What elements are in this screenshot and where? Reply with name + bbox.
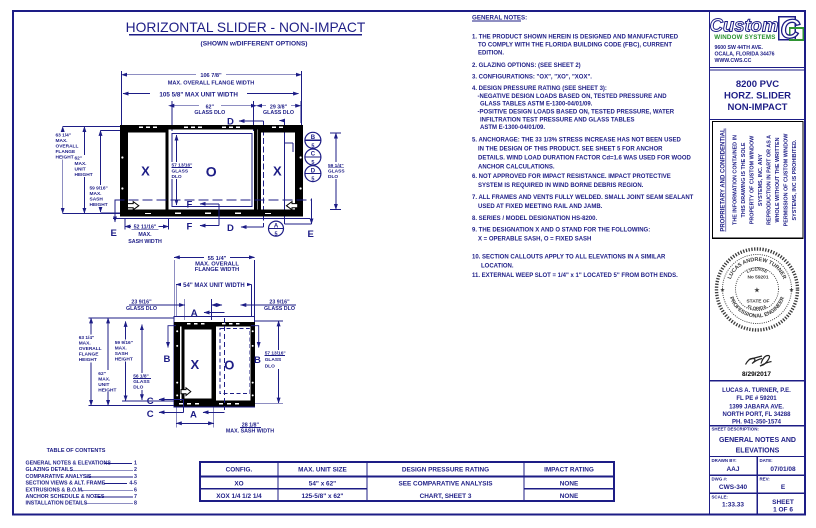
svg-text:MAX.: MAX. [75, 161, 87, 167]
svg-text:59 9/16": 59 9/16" [115, 340, 133, 346]
svg-text:10. SECTION CALLOUTS APPLY TO: 10. SECTION CALLOUTS APPLY TO ALL ELEVAT… [472, 255, 666, 261]
svg-text:DATE:: DATE: [760, 458, 774, 463]
svg-text:23 9/16": 23 9/16" [131, 300, 152, 306]
svg-text:SHEET: SHEET [772, 499, 794, 506]
svg-text:6: 6 [134, 487, 137, 493]
svg-text:X: X [273, 164, 282, 179]
svg-text:NON-IMPACT: NON-IMPACT [728, 102, 788, 113]
svg-text:EDITION.: EDITION. [478, 50, 504, 56]
svg-text:B: B [311, 135, 316, 141]
svg-text:PERMISSION OF CUSTOM WINDOW: PERMISSION OF CUSTOM WINDOW [784, 133, 790, 227]
svg-text:63 1/4": 63 1/4" [56, 132, 72, 138]
svg-text:MAX.: MAX. [138, 232, 152, 238]
svg-text:STATE OF: STATE OF [746, 299, 769, 305]
svg-text:USED AT FIXED MEETING RAIL AND: USED AT FIXED MEETING RAIL AND JAMB. [478, 204, 603, 210]
svg-text:ELEVATIONS: ELEVATIONS [736, 447, 780, 454]
svg-text:1. THE PRODUCT SHOWN HEREIN IS: 1. THE PRODUCT SHOWN HEREIN IS DESIGNED … [472, 35, 679, 41]
svg-text:COMPARATIVE ANALYSIS: COMPARATIVE ANALYSIS [26, 474, 92, 480]
svg-text:SECTION VIEWS & ALT. FRAME: SECTION VIEWS & ALT. FRAME [26, 481, 106, 487]
svg-text:★: ★ [720, 288, 725, 294]
svg-text:8/29/2017: 8/29/2017 [742, 371, 771, 378]
svg-text:GLASS DLO: GLASS DLO [194, 110, 225, 116]
svg-text:O: O [206, 164, 217, 180]
svg-text:OVERALL: OVERALL [79, 346, 102, 352]
svg-text:GLAZING DETAILS: GLAZING DETAILS [26, 467, 74, 473]
svg-text:X: X [141, 164, 150, 179]
svg-text:2. GLAZING OPTIONS: (SEE SHEET: 2. GLAZING OPTIONS: (SEE SHEET 2) [472, 63, 581, 69]
svg-text:SYSTEM IS REQUIRED IN WIND BOR: SYSTEM IS REQUIRED IN WIND BORNE DEBRIS … [478, 183, 644, 189]
svg-text:2: 2 [134, 467, 137, 473]
svg-text:XOX 1/4 1/2 1/4: XOX 1/4 1/2 1/4 [216, 493, 262, 500]
svg-text:106 7/8": 106 7/8" [200, 73, 222, 79]
svg-text:C: C [780, 14, 800, 44]
svg-text:LOCATION.: LOCATION. [481, 264, 514, 270]
svg-text:DWG #:: DWG #: [712, 476, 728, 481]
svg-text:GLASS TABLES ASTM E-1300-04/01: GLASS TABLES ASTM E-1300-04/01/09. [480, 102, 593, 108]
svg-text:THE INFORMATION CONTAINED IN: THE INFORMATION CONTAINED IN [733, 135, 739, 225]
svg-text:FLANGE: FLANGE [56, 149, 77, 155]
svg-text:GENERAL NOTES & ELEVATIONS: GENERAL NOTES & ELEVATIONS [26, 461, 112, 467]
svg-text:SEE COMPARATIVE ANALYSIS: SEE COMPARATIVE ANALYSIS [398, 481, 493, 488]
svg-text:O: O [224, 358, 234, 373]
svg-text:★: ★ [789, 288, 794, 294]
svg-text:MAX. SASH WIDTH: MAX. SASH WIDTH [226, 429, 274, 435]
svg-text:MAX.: MAX. [90, 191, 102, 197]
svg-text:A: A [274, 223, 279, 229]
svg-text:THIS DRAWING IS THE SOLE: THIS DRAWING IS THE SOLE [741, 142, 747, 217]
svg-text:5. ANCHORAGE: THE 33 1/3% STRE: 5. ANCHORAGE: THE 33 1/3% STRESS INCREAS… [472, 138, 681, 144]
svg-text:GENERAL NOTES AND: GENERAL NOTES AND [719, 437, 796, 444]
svg-text:7: 7 [134, 494, 137, 500]
svg-text:SYSTEMS, INC IS PROHIBITED.: SYSTEMS, INC IS PROHIBITED. [792, 139, 798, 220]
svg-text:E: E [781, 484, 786, 491]
svg-text:62": 62" [75, 156, 83, 162]
svg-text:SCALE:: SCALE: [712, 494, 729, 499]
svg-text:3: 3 [134, 474, 137, 480]
svg-text:HEIGHT: HEIGHT [115, 357, 133, 363]
svg-text:ANCHOR CALCULATIONS.: ANCHOR CALCULATIONS. [478, 165, 555, 171]
svg-text:FLANGE WIDTH: FLANGE WIDTH [195, 267, 239, 273]
svg-text:NONE: NONE [560, 493, 579, 500]
svg-text:UNIT: UNIT [98, 382, 109, 388]
svg-text:5: 5 [274, 232, 277, 238]
svg-text:EXTRUSIONS & B.O.M.: EXTRUSIONS & B.O.M. [26, 487, 85, 493]
svg-text:SHEET DESCRIPTION:: SHEET DESCRIPTION: [712, 427, 760, 432]
svg-text:A: A [190, 409, 197, 420]
svg-text:WWW.CWS.CC: WWW.CWS.CC [715, 58, 752, 64]
svg-text:A: A [191, 308, 198, 319]
svg-text:SASH: SASH [115, 351, 129, 357]
svg-text:MAX.: MAX. [56, 138, 68, 144]
svg-text:C: C [147, 409, 154, 420]
svg-text:FLANGE: FLANGE [79, 352, 100, 358]
svg-text:7. ALL FRAMES AND VENTS FULLY: 7. ALL FRAMES AND VENTS FULLY WELDED. SM… [472, 195, 694, 201]
svg-text:GLASS: GLASS [133, 379, 150, 385]
svg-text:PROPERTY OF CUSTOM WINDOW: PROPERTY OF CUSTOM WINDOW [750, 135, 756, 224]
svg-text:MAX.: MAX. [98, 376, 110, 382]
svg-text:X = OPERABLE SASH, O = FIXED S: X = OPERABLE SASH, O = FIXED SASH [478, 236, 591, 242]
svg-text:IMPACT RATING: IMPACT RATING [544, 466, 594, 473]
svg-text:23 9/16": 23 9/16" [269, 300, 290, 306]
svg-text:CONFIG.: CONFIG. [226, 466, 253, 473]
svg-text:F: F [187, 199, 193, 210]
svg-text:HEIGHT: HEIGHT [75, 172, 93, 178]
svg-text:IN THE DESIGN OF THIS PRODUCT.: IN THE DESIGN OF THIS PRODUCT. SEE SHEET… [478, 147, 663, 153]
svg-text:07/01/08: 07/01/08 [770, 466, 796, 473]
svg-text:8: 8 [134, 501, 137, 507]
svg-text:OCALA, FLORIDA 34476: OCALA, FLORIDA 34476 [715, 51, 775, 57]
svg-text:9. THE DESIGNATION X AND O STA: 9. THE DESIGNATION X AND O STAND FOR THE… [472, 227, 650, 233]
svg-text:1: 1 [134, 461, 137, 467]
svg-text:1 OF 6: 1 OF 6 [773, 506, 793, 513]
svg-text:-POSITIVE DESIGN LOADS BASED O: -POSITIVE DESIGN LOADS BASED ON, TESTED … [478, 110, 675, 116]
svg-text:B: B [254, 355, 261, 366]
svg-text:54" MAX UNIT WIDTH: 54" MAX UNIT WIDTH [183, 283, 245, 289]
svg-text:HORZ. SLIDER: HORZ. SLIDER [724, 90, 791, 101]
svg-text:DESIGN PRESSURE RATING: DESIGN PRESSURE RATING [402, 466, 489, 473]
svg-text:DETAILS. WIND LOAD DURATION FA: DETAILS. WIND LOAD DURATION FACTOR Cd=1.… [478, 156, 692, 162]
svg-text:GENERAL NOTES:: GENERAL NOTES: [472, 15, 527, 22]
svg-text:E: E [111, 228, 117, 239]
svg-text:DLO: DLO [172, 174, 182, 180]
svg-text:1399 JABARA AVE.: 1399 JABARA AVE. [729, 404, 784, 410]
svg-text:INSTALLATION DETAILS: INSTALLATION DETAILS [26, 501, 88, 507]
svg-text:No 59201: No 59201 [747, 275, 768, 281]
svg-text:★: ★ [754, 287, 760, 294]
svg-text:MAX. OVERALL FLANGE WIDTH: MAX. OVERALL FLANGE WIDTH [168, 80, 255, 86]
svg-text:D: D [311, 168, 316, 174]
svg-text:11. EXTERNAL WEEP SLOT = 1/4": 11. EXTERNAL WEEP SLOT = 1/4" x 1" LOCAT… [472, 273, 678, 279]
svg-text:OVERALL: OVERALL [56, 143, 79, 149]
svg-text:E: E [308, 229, 314, 240]
svg-text:HEIGHT: HEIGHT [56, 155, 74, 161]
svg-text:SYSTEMS, INC. ANY: SYSTEMS, INC. ANY [758, 153, 764, 206]
svg-text:HEIGHT: HEIGHT [98, 387, 116, 393]
svg-text:TO COMPLY WITH THE FLORIDA BUI: TO COMPLY WITH THE FLORIDA BUILDING CODE… [478, 43, 672, 49]
svg-text:GLASS: GLASS [265, 357, 282, 363]
svg-text:4-5: 4-5 [129, 481, 137, 487]
svg-text:105 5/8" MAX UNIT WIDTH: 105 5/8" MAX UNIT WIDTH [159, 92, 238, 99]
svg-text:WINDOW SYSTEMS: WINDOW SYSTEMS [714, 34, 775, 41]
svg-text:HORIZONTAL SLIDER - NON-IMPACT: HORIZONTAL SLIDER - NON-IMPACT [126, 20, 366, 35]
svg-text:XO: XO [234, 481, 243, 488]
svg-text:HEIGHT: HEIGHT [90, 202, 108, 208]
svg-text:ASTM E-1300-04/01/09.: ASTM E-1300-04/01/09. [480, 125, 545, 131]
svg-text:59 9/16": 59 9/16" [90, 186, 108, 192]
svg-text:GLASS DLO: GLASS DLO [264, 306, 295, 312]
svg-text:MAX.: MAX. [79, 341, 91, 347]
svg-text:NORTH PORT, FL 34288: NORTH PORT, FL 34288 [723, 412, 792, 418]
svg-text:MAX.: MAX. [115, 346, 127, 352]
svg-text:REV:: REV: [760, 476, 771, 481]
svg-text:3. CONFIGURATIONS: "OX", "XO",: 3. CONFIGURATIONS: "OX", "XO", "XOX". [472, 75, 592, 81]
svg-text:HEIGHT: HEIGHT [79, 357, 97, 363]
svg-text:PH. 941-350-1574: PH. 941-350-1574 [732, 420, 782, 426]
svg-text:F: F [187, 221, 193, 232]
svg-text:C: C [147, 396, 154, 407]
svg-text:UNIT: UNIT [75, 167, 86, 173]
svg-text:1:33.33: 1:33.33 [722, 502, 744, 509]
svg-text:CHART, SHEET 3: CHART, SHEET 3 [420, 493, 472, 500]
svg-text:8200 PVC: 8200 PVC [736, 79, 779, 90]
svg-text:GLASS: GLASS [172, 168, 189, 174]
svg-text:SASH WIDTH: SASH WIDTH [128, 239, 162, 245]
svg-text:DLO: DLO [265, 364, 275, 370]
svg-text:GLASS: GLASS [328, 168, 345, 174]
svg-text:GLASS DLO: GLASS DLO [263, 110, 294, 116]
svg-text:54" x 62": 54" x 62" [309, 481, 336, 488]
svg-text:SASH: SASH [90, 197, 104, 203]
svg-text:Custom: Custom [710, 15, 779, 36]
svg-text:AAJ: AAJ [726, 466, 739, 473]
svg-text:62": 62" [98, 371, 106, 377]
svg-text:D: D [227, 223, 234, 234]
svg-text:MAX. UNIT SIZE: MAX. UNIT SIZE [298, 466, 347, 473]
svg-text:125-5/8" x 62": 125-5/8" x 62" [302, 493, 344, 500]
svg-text:REPRODUCTION IN PART OR AS A: REPRODUCTION IN PART OR AS A [767, 135, 773, 225]
svg-text:X: X [190, 357, 199, 372]
svg-text:-NEGATIVE DESIGN LOADS BASED O: -NEGATIVE DESIGN LOADS BASED ON, TESTED … [478, 94, 668, 100]
svg-text:4. DESIGN PRESSURE RATING (SEE: 4. DESIGN PRESSURE RATING (SEE SHEET 3): [472, 86, 607, 92]
svg-text:DLO: DLO [328, 174, 338, 180]
svg-text:B: B [164, 354, 171, 365]
svg-text:8. SERIES / MODEL DESIGNATION: 8. SERIES / MODEL DESIGNATION HS-8200. [472, 216, 597, 222]
svg-text:CWS-340: CWS-340 [719, 484, 748, 491]
svg-text:TABLE OF CONTENTS: TABLE OF CONTENTS [47, 448, 106, 454]
svg-text:WHOLE WITHOUT THE WRITTEN: WHOLE WITHOUT THE WRITTEN [775, 137, 781, 222]
svg-text:GLASS DLO: GLASS DLO [126, 306, 157, 312]
svg-text:6. NOT APPROVED FOR IMPACT RES: 6. NOT APPROVED FOR IMPACT RESISTANCE. I… [472, 174, 671, 180]
svg-text:DLO: DLO [133, 385, 143, 391]
svg-text:NONE: NONE [560, 481, 579, 488]
svg-text:63 1/4": 63 1/4" [79, 335, 95, 341]
svg-text:5: 5 [311, 177, 314, 183]
svg-text:DRAWN BY:: DRAWN BY: [712, 458, 738, 463]
svg-text:FL PE # 59201: FL PE # 59201 [736, 396, 777, 402]
svg-text:PROPRIETARY AND CONFIDENTIAL: PROPRIETARY AND CONFIDENTIAL [721, 128, 727, 232]
svg-text:C: C [311, 152, 316, 158]
svg-text:ANCHOR SCHEDULE & NOTES: ANCHOR SCHEDULE & NOTES [26, 494, 105, 500]
svg-text:INFILTRATION TEST PRESSURE AND: INFILTRATION TEST PRESSURE AND GLASS TAB… [480, 117, 634, 123]
svg-text:(SHOWN w/DIFFERENT OPTIONS): (SHOWN w/DIFFERENT OPTIONS) [201, 41, 308, 48]
svg-text:9600 SW 44TH AVE.: 9600 SW 44TH AVE. [715, 45, 764, 51]
svg-text:LUCAS A. TURNER, P.E.: LUCAS A. TURNER, P.E. [722, 388, 791, 394]
